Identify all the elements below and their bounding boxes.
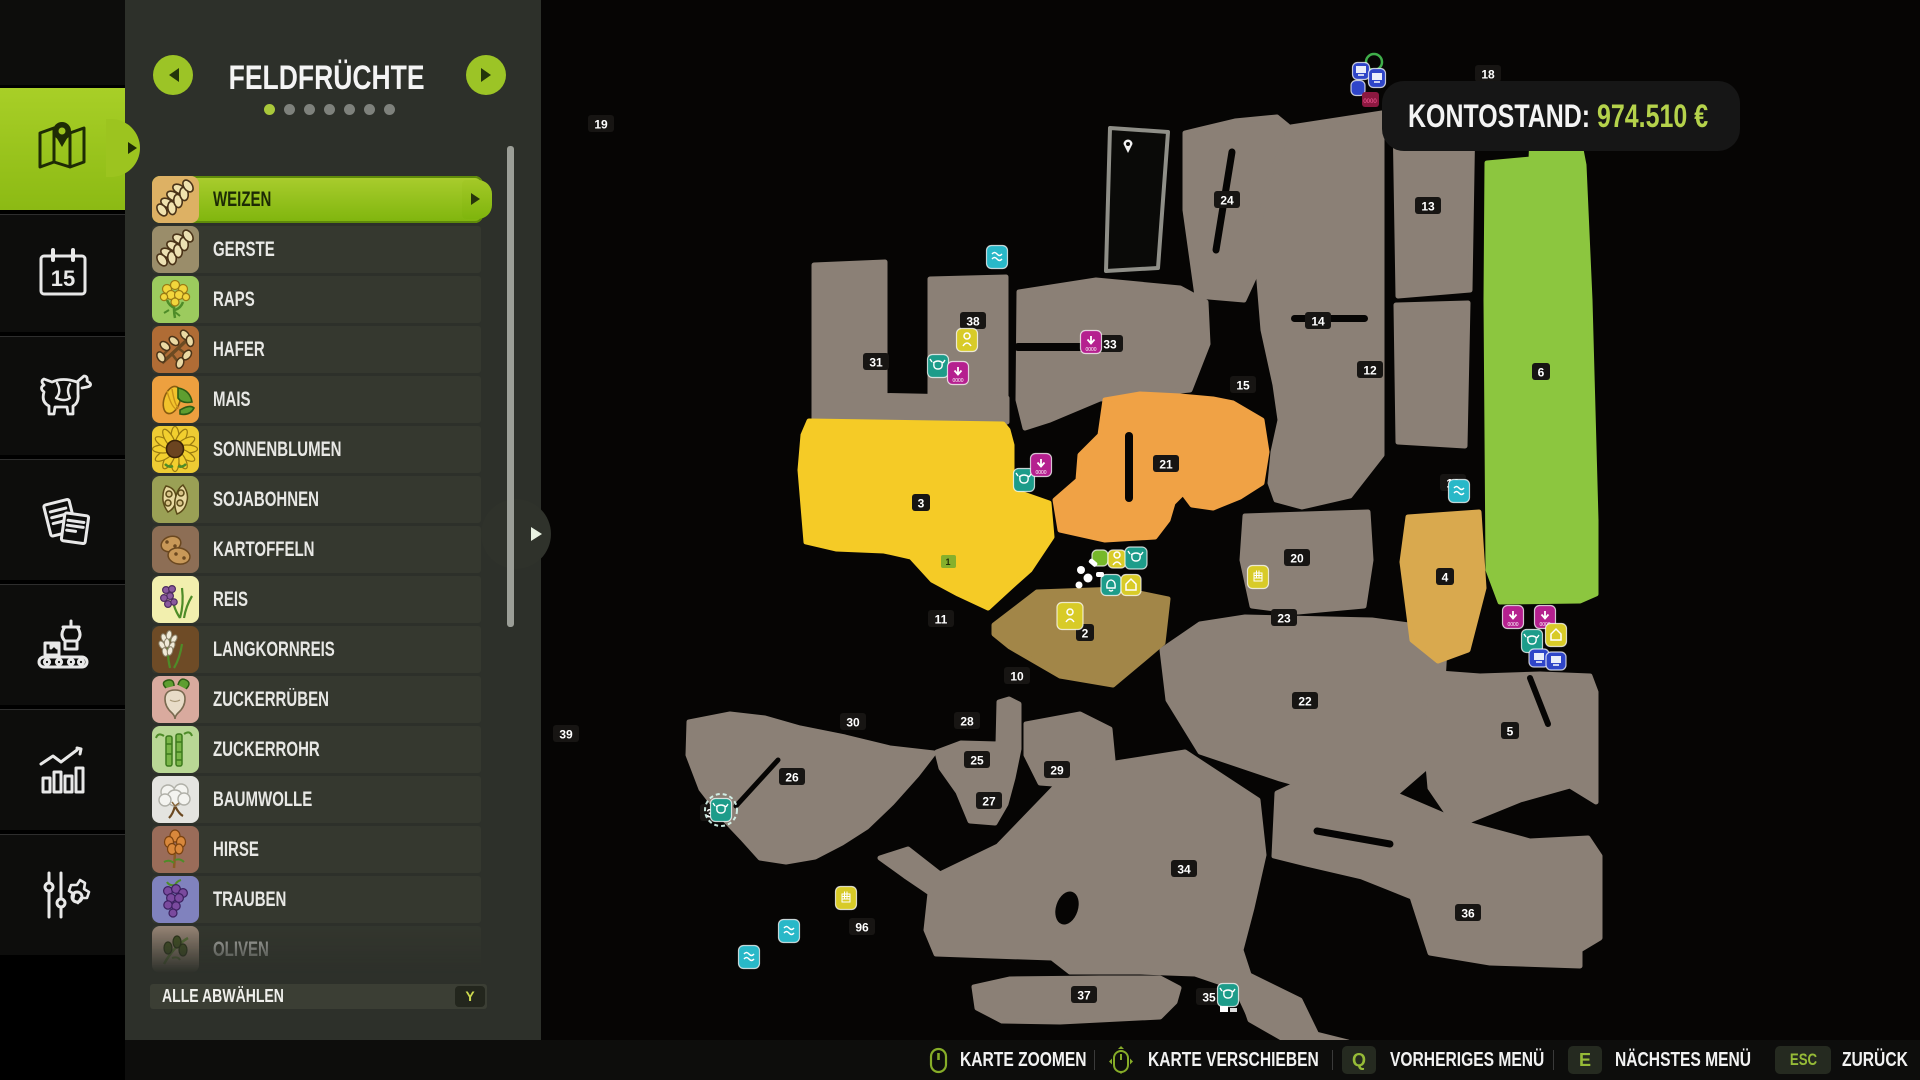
svg-text:0000: 0000 — [1363, 99, 1377, 105]
svg-text:0000: 0000 — [952, 378, 963, 384]
svg-text:15: 15 — [50, 266, 74, 291]
svg-text:34: 34 — [1177, 863, 1191, 877]
svg-text:0000: 0000 — [1507, 622, 1518, 628]
svg-text:13: 13 — [1421, 200, 1435, 214]
svg-text:6: 6 — [1538, 366, 1545, 380]
svg-text:26: 26 — [785, 771, 799, 785]
svg-text:35: 35 — [1202, 991, 1216, 1005]
svg-text:15: 15 — [1236, 379, 1250, 393]
svg-text:25: 25 — [970, 754, 984, 768]
svg-text:11: 11 — [935, 613, 948, 627]
svg-text:33: 33 — [1103, 338, 1117, 352]
svg-text:5: 5 — [1507, 725, 1514, 739]
svg-text:2: 2 — [1082, 627, 1089, 641]
svg-text:19: 19 — [594, 118, 608, 132]
svg-text:21: 21 — [1159, 458, 1173, 472]
svg-text:1: 1 — [945, 557, 950, 567]
svg-text:12: 12 — [1363, 364, 1377, 378]
svg-text:24: 24 — [1220, 194, 1234, 208]
svg-text:0000: 0000 — [1035, 470, 1046, 476]
svg-text:29: 29 — [1050, 764, 1064, 778]
svg-text:14: 14 — [1311, 315, 1325, 329]
svg-text:38: 38 — [966, 315, 980, 329]
svg-text:37: 37 — [1077, 989, 1091, 1003]
svg-text:18: 18 — [1481, 68, 1495, 82]
svg-text:27: 27 — [982, 795, 996, 809]
svg-text:36: 36 — [1461, 907, 1475, 921]
svg-text:96: 96 — [855, 921, 869, 935]
svg-text:39: 39 — [559, 728, 573, 742]
svg-text:20: 20 — [1290, 552, 1304, 566]
svg-text:31: 31 — [869, 356, 883, 370]
svg-text:0000: 0000 — [1085, 347, 1096, 353]
svg-text:23: 23 — [1277, 612, 1291, 626]
svg-text:10: 10 — [1010, 670, 1024, 684]
svg-text:22: 22 — [1298, 695, 1312, 709]
svg-text:3: 3 — [918, 497, 925, 511]
svg-text:30: 30 — [846, 716, 860, 730]
svg-text:4: 4 — [1442, 571, 1449, 585]
svg-text:28: 28 — [960, 715, 974, 729]
